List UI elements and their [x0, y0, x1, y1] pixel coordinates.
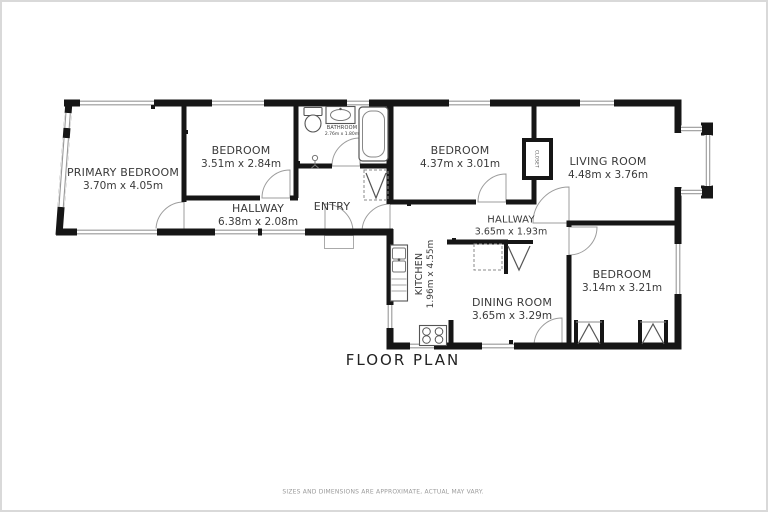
clothes-rail-icon	[508, 246, 530, 270]
door-arc-entry-passage	[362, 204, 390, 232]
window	[675, 244, 682, 294]
stove-icon	[420, 326, 447, 346]
window	[347, 100, 369, 107]
window	[387, 305, 394, 328]
room-label-bedroom4: BEDROOM 3.14m x 3.21m	[582, 268, 662, 296]
room-dims: 3.65m x 3.29m	[472, 310, 552, 324]
room-dims: 3.14m x 3.21m	[582, 282, 662, 296]
window	[212, 100, 264, 107]
room-name: CLOSET	[534, 150, 539, 168]
room-label-bedroom3: BEDROOM 4.37m x 3.01m	[420, 144, 500, 172]
window	[77, 229, 157, 236]
entry-cupboard	[364, 170, 388, 200]
room-name: ENTRY	[314, 200, 351, 214]
bay-window	[681, 123, 713, 199]
room-label-hallway-west: HALLWAY 6.38m x 2.08m	[218, 202, 298, 230]
room-label-entry: ENTRY	[314, 200, 351, 214]
door-arc-bedroom4	[569, 227, 597, 255]
room-dims: 3.70m x 4.05m	[67, 180, 179, 194]
dining-cupboards	[474, 240, 533, 274]
room-name: PRIMARY BEDROOM	[67, 166, 179, 180]
toilet-icon	[304, 108, 322, 133]
bathtub-icon	[359, 107, 388, 161]
room-dims: 2.76m x 1.80m	[325, 131, 359, 137]
room-label-primary-bedroom: PRIMARY BEDROOM 3.70m x 4.05m	[67, 166, 179, 194]
room-name: HALLWAY	[475, 213, 547, 226]
bay-post-bottom	[701, 186, 713, 199]
door-arc-bedroom3	[478, 174, 506, 202]
room-name: BEDROOM	[582, 268, 662, 282]
plan-title: FLOOR PLAN	[346, 351, 460, 369]
window	[65, 113, 71, 128]
room-dims: 6.38m x 2.08m	[218, 216, 298, 230]
room-label-bathroom: BATHROOM 2.76m x 1.80m	[325, 125, 359, 137]
room-name: BATHROOM	[325, 125, 359, 132]
window	[580, 100, 614, 107]
door-arc-bedroom2	[262, 170, 290, 198]
room-label-bedroom2: BEDROOM 3.51m x 2.84m	[201, 144, 281, 172]
room-dims: 4.48m x 3.76m	[568, 169, 648, 183]
bay-post-top	[701, 123, 713, 136]
room-dims: 3.51m x 2.84m	[201, 158, 281, 172]
room-name: HALLWAY	[218, 202, 298, 216]
front-porch-step	[325, 236, 354, 249]
wardrobes	[576, 320, 666, 346]
room-label-hallway-east: HALLWAY 3.65m x 1.93m	[475, 213, 547, 238]
room-label-kitchen: KITCHEN 1.96m x 4.55m	[414, 240, 438, 309]
window	[80, 100, 154, 107]
room-dims: 1.96m x 4.55m	[426, 240, 438, 309]
floor-plan-drawing	[2, 2, 768, 512]
clothes-rail-icon	[366, 173, 386, 198]
wardrobe-icon	[640, 320, 666, 346]
kitchen-sink-icon	[391, 245, 408, 301]
room-label-dining-room: DINING ROOM 3.65m x 3.29m	[472, 296, 552, 324]
room-label-living-room: LIVING ROOM 4.48m x 3.76m	[568, 155, 648, 183]
room-dims: 4.37m x 3.01m	[420, 158, 500, 172]
wardrobe-icon	[576, 320, 602, 346]
disclaimer-text: SIZES AND DIMENSIONS ARE APPROXIMATE, AC…	[282, 489, 483, 496]
room-name: BEDROOM	[420, 144, 500, 158]
room-name: KITCHEN	[414, 240, 426, 309]
room-name: DINING ROOM	[472, 296, 552, 310]
room-name: LIVING ROOM	[568, 155, 648, 169]
room-name: BEDROOM	[201, 144, 281, 158]
floor-plan-canvas: PRIMARY BEDROOM 3.70m x 4.05m BEDROOM 3.…	[0, 0, 768, 512]
room-label-closet: CLOSET	[534, 150, 539, 168]
window	[449, 100, 490, 107]
door-arc-primary-bedroom	[156, 202, 184, 230]
door-arc-bathroom	[332, 138, 360, 166]
sink-icon	[326, 107, 355, 124]
room-dims: 3.65m x 1.93m	[475, 226, 547, 238]
